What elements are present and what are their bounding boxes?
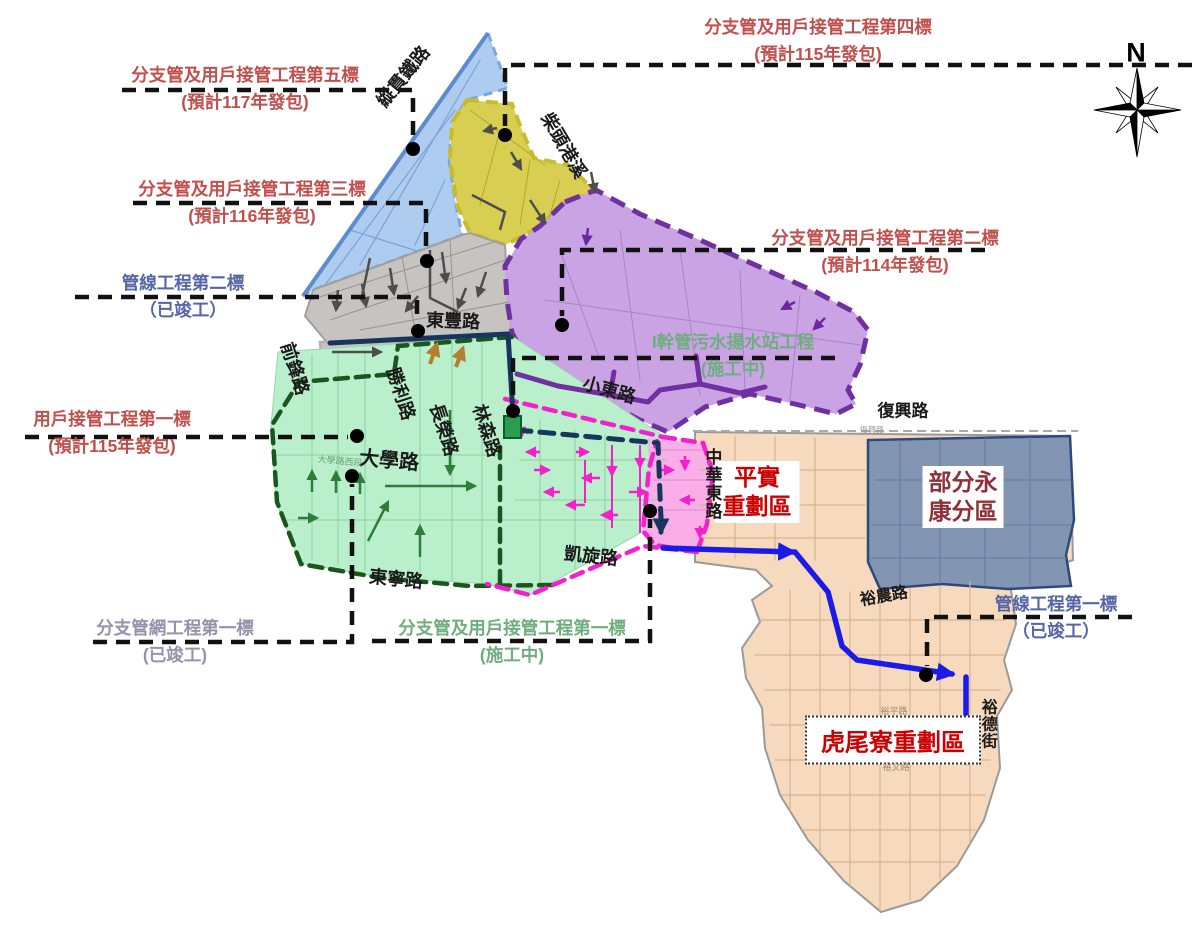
callout-bid2-subtitle: (預計114年發包) <box>771 252 999 279</box>
road-label-dongfeng: 東豐路 <box>426 311 481 333</box>
pump-station-marker <box>504 416 521 438</box>
callout-bid5-subtitle: (預計117年發包) <box>131 89 359 116</box>
callout-bid4: 分支管及用戶接管工程第四標 (預計115年發包) <box>704 14 932 68</box>
callout-bid3: 分支管及用戶接管工程第三標 (預計116年發包) <box>138 176 366 230</box>
callout-bid2: 分支管及用戶接管工程第二標 (預計114年發包) <box>771 225 999 279</box>
callout-branch1-subtitle: (施工中) <box>398 642 626 669</box>
callout-pipe1-subtitle: （已竣工） <box>995 618 1118 645</box>
callout-pump: I幹管污水揚水站工程 (施工中) <box>652 329 814 383</box>
callout-bid2-title: 分支管及用戶接管工程第二標 <box>771 225 999 252</box>
callout-bid4-subtitle: (預計115年發包) <box>704 41 932 68</box>
callout-pipe1-title: 管線工程第一標 <box>995 591 1118 618</box>
callout-branch1-title: 分支管及用戶接管工程第一標 <box>398 615 626 642</box>
callout-branch1: 分支管及用戶接管工程第一標 (施工中) <box>398 615 626 669</box>
callout-user1: 用戶接管工程第一標 (預計115年發包) <box>33 406 191 460</box>
district-label-pingshi: 平實 重劃區 <box>715 461 800 523</box>
callout-net1-title: 分支管網工程第一標 <box>96 615 254 642</box>
road-label-yuwen: 裕文路 <box>882 763 909 773</box>
callout-bid5-title: 分支管及用戶接管工程第五標 <box>131 62 359 89</box>
sewerage-project-map: 分支管及用戶接管工程第四標 (預計115年發包) 分支管及用戶接管工程第五標 (… <box>0 0 1200 928</box>
district-label-huweiliao: 虎尾寮重劃區 <box>805 716 981 765</box>
compass-rose-icon <box>1094 68 1181 157</box>
road-label-yuping: 裕平路 <box>880 707 907 717</box>
callout-user1-title: 用戶接管工程第一標 <box>33 406 191 433</box>
callout-bid3-subtitle: (預計116年發包) <box>138 203 366 230</box>
road-label-fuxing-small: 復興路 <box>860 427 884 436</box>
callout-bid4-title: 分支管及用戶接管工程第四標 <box>704 14 932 41</box>
callout-pipe2-subtitle: （已竣工） <box>122 297 245 324</box>
callout-net1: 分支管網工程第一標 (已竣工) <box>96 615 254 669</box>
compass-north-label: N <box>1126 38 1146 69</box>
road-label-fuxing: 復興路 <box>878 403 929 422</box>
district-label-yongkang: 部分永 康分區 <box>923 466 1004 528</box>
callout-net1-subtitle: (已竣工) <box>96 642 254 669</box>
callout-pipe2-title: 管線工程第二標 <box>122 270 245 297</box>
map-canvas <box>0 0 1200 928</box>
callout-pump-subtitle: (施工中) <box>652 356 814 383</box>
callout-bid5: 分支管及用戶接管工程第五標 (預計117年發包) <box>131 62 359 116</box>
callout-pipe2: 管線工程第二標 （已竣工） <box>122 270 245 324</box>
callout-user1-subtitle: (預計115年發包) <box>33 433 191 460</box>
callout-pipe1: 管線工程第一標 （已竣工） <box>995 591 1118 645</box>
callout-pump-title: I幹管污水揚水站工程 <box>652 329 814 356</box>
road-label-zhonghua: 中華東路 <box>702 448 721 520</box>
road-label-yude: 裕德街 <box>978 699 996 750</box>
callout-bid3-title: 分支管及用戶接管工程第三標 <box>138 176 366 203</box>
